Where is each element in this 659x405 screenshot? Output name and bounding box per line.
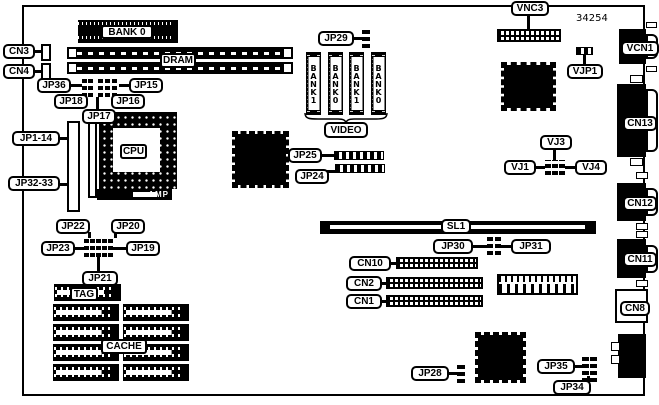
audio-jack-pin <box>611 342 620 351</box>
callout-vj1: VJ1 <box>504 160 536 175</box>
callout-pointer <box>527 15 530 29</box>
callout-cn13: CN13 <box>623 116 657 131</box>
callout-jp36: JP36 <box>37 78 71 93</box>
callout-pointer <box>113 247 126 250</box>
callout-jp23: JP23 <box>41 241 75 256</box>
bank0-label: BANK 0 <box>101 25 153 39</box>
callout-pointer <box>34 70 42 73</box>
cn10-header <box>396 257 478 269</box>
callout-pointer <box>320 154 334 157</box>
callout-pointer <box>119 84 129 87</box>
callout-pointer <box>553 150 556 161</box>
callout-vj3: VJ3 <box>540 135 572 150</box>
callout-jp28: JP28 <box>411 366 449 381</box>
callout-jp17: JP17 <box>82 109 116 124</box>
jumper-block <box>98 78 103 97</box>
jumper-block <box>105 78 110 97</box>
callout-pointer <box>471 245 487 248</box>
cn2-header <box>386 277 483 289</box>
callout-vnc3: VNC3 <box>511 1 549 16</box>
callout-pointer <box>74 247 84 250</box>
bracket-tab <box>646 66 657 72</box>
callout-jp19: JP19 <box>126 241 160 256</box>
bracket-tab <box>636 280 648 287</box>
callout-jp22: JP22 <box>56 219 90 234</box>
jp30-jumper <box>487 237 493 255</box>
callout-cn11: CN11 <box>623 252 657 267</box>
jp1-14-strip <box>67 121 80 212</box>
jp34-jumper <box>590 357 597 382</box>
video-bank-label: BANK0 <box>372 56 385 111</box>
callout-vjp1: VJP1 <box>567 64 603 79</box>
callout-jp24: JP24 <box>295 169 329 184</box>
callout-jp29: JP29 <box>318 31 354 46</box>
callout-pointer <box>96 97 99 109</box>
callout-cn10: CN10 <box>349 256 391 271</box>
jp24-header <box>335 164 385 173</box>
cn1-header <box>386 295 483 307</box>
cache-chip <box>53 364 119 381</box>
bracket-tab <box>630 75 643 83</box>
callout-jp16: JP16 <box>111 94 145 109</box>
jumper-block <box>84 237 89 257</box>
callout-jp20: JP20 <box>111 219 145 234</box>
super-io-chip-qfp <box>475 332 526 383</box>
cache-label: CACHE <box>101 339 147 354</box>
callout-pointer <box>501 245 511 248</box>
bracket-tab <box>636 223 648 230</box>
callout-video: VIDEO <box>324 122 368 138</box>
callout-pointer <box>565 166 575 169</box>
cn3-connector <box>41 44 51 61</box>
bracket-tab <box>646 22 657 28</box>
callout-jp18: JP18 <box>54 94 88 109</box>
jumper-block <box>90 237 95 257</box>
callout-pointer <box>34 50 42 53</box>
video-simm-4: BANK0 <box>371 52 386 115</box>
audio-jack-pin <box>611 355 620 364</box>
callout-cn8: CN8 <box>620 301 650 316</box>
video-bank-label: BANK0 <box>329 56 342 111</box>
callout-jp35: JP35 <box>537 359 575 374</box>
cpu-label: CPU <box>120 144 147 159</box>
callout-jp21: JP21 <box>82 271 118 286</box>
part-number: 34254 <box>576 13 608 24</box>
callout-jp34: JP34 <box>553 380 591 395</box>
bracket-tab <box>636 172 648 179</box>
callout-jp30: JP30 <box>433 239 473 254</box>
video-simm-1: BANK1 <box>306 52 321 115</box>
callout-cn4: CN4 <box>3 64 35 79</box>
jp28-jumper <box>457 363 465 383</box>
dram-label: DRAM <box>160 53 196 68</box>
callout-sl1: SL1 <box>441 219 471 234</box>
callout-pointer <box>88 232 91 238</box>
video-bank-label: BANK1 <box>307 56 320 111</box>
jp25-header <box>334 151 384 160</box>
callout-jp25: JP25 <box>288 148 322 163</box>
amp-window <box>133 192 157 197</box>
jumper-block <box>96 237 101 257</box>
callout-cn1: CN1 <box>346 294 382 309</box>
jp29-jumper <box>362 29 370 48</box>
callout-jp31: JP31 <box>511 239 551 254</box>
cache-chip <box>123 304 189 321</box>
chipset-qfp <box>232 131 289 188</box>
callout-cn3: CN3 <box>3 44 35 59</box>
callout-jp15: JP15 <box>129 78 163 93</box>
audio-jack-block <box>618 334 646 378</box>
callout-pointer <box>535 166 545 169</box>
video-bank-label: BANK1 <box>350 56 363 111</box>
amp-regulator: AMP <box>97 189 172 200</box>
vj-jumper-block <box>552 160 558 175</box>
motherboard-diagram: 34254 CN3 CN4 BANK 0 DRAM JP36 JP15 JP18… <box>0 0 659 405</box>
cache-chip <box>123 364 189 381</box>
callout-vj4: VJ4 <box>575 160 607 175</box>
tag-label: TAG <box>70 287 98 301</box>
cache-chip <box>53 304 119 321</box>
callout-vcn1: VCN1 <box>621 41 659 56</box>
callout-pointer <box>97 257 100 272</box>
power-connector <box>497 274 578 295</box>
video-simm-3: BANK1 <box>349 52 364 115</box>
vnc3-header <box>497 29 561 42</box>
jumper-block <box>102 237 107 257</box>
callout-cn12: CN12 <box>623 196 657 211</box>
callout-jp1-14: JP1-14 <box>12 131 60 146</box>
callout-pointer <box>70 84 82 87</box>
cpu-side-strip <box>88 113 97 198</box>
vjp1-jumper <box>576 47 593 55</box>
jumper-block <box>88 78 93 97</box>
vj-jumper-block <box>545 160 551 175</box>
video-simm-2: BANK0 <box>328 52 343 115</box>
callout-cn2: CN2 <box>346 276 382 291</box>
bracket-tab <box>630 158 643 166</box>
bracket-tab <box>636 231 648 238</box>
io-chip-qfp <box>501 62 556 111</box>
callout-jp32-33: JP32-33 <box>8 176 60 191</box>
